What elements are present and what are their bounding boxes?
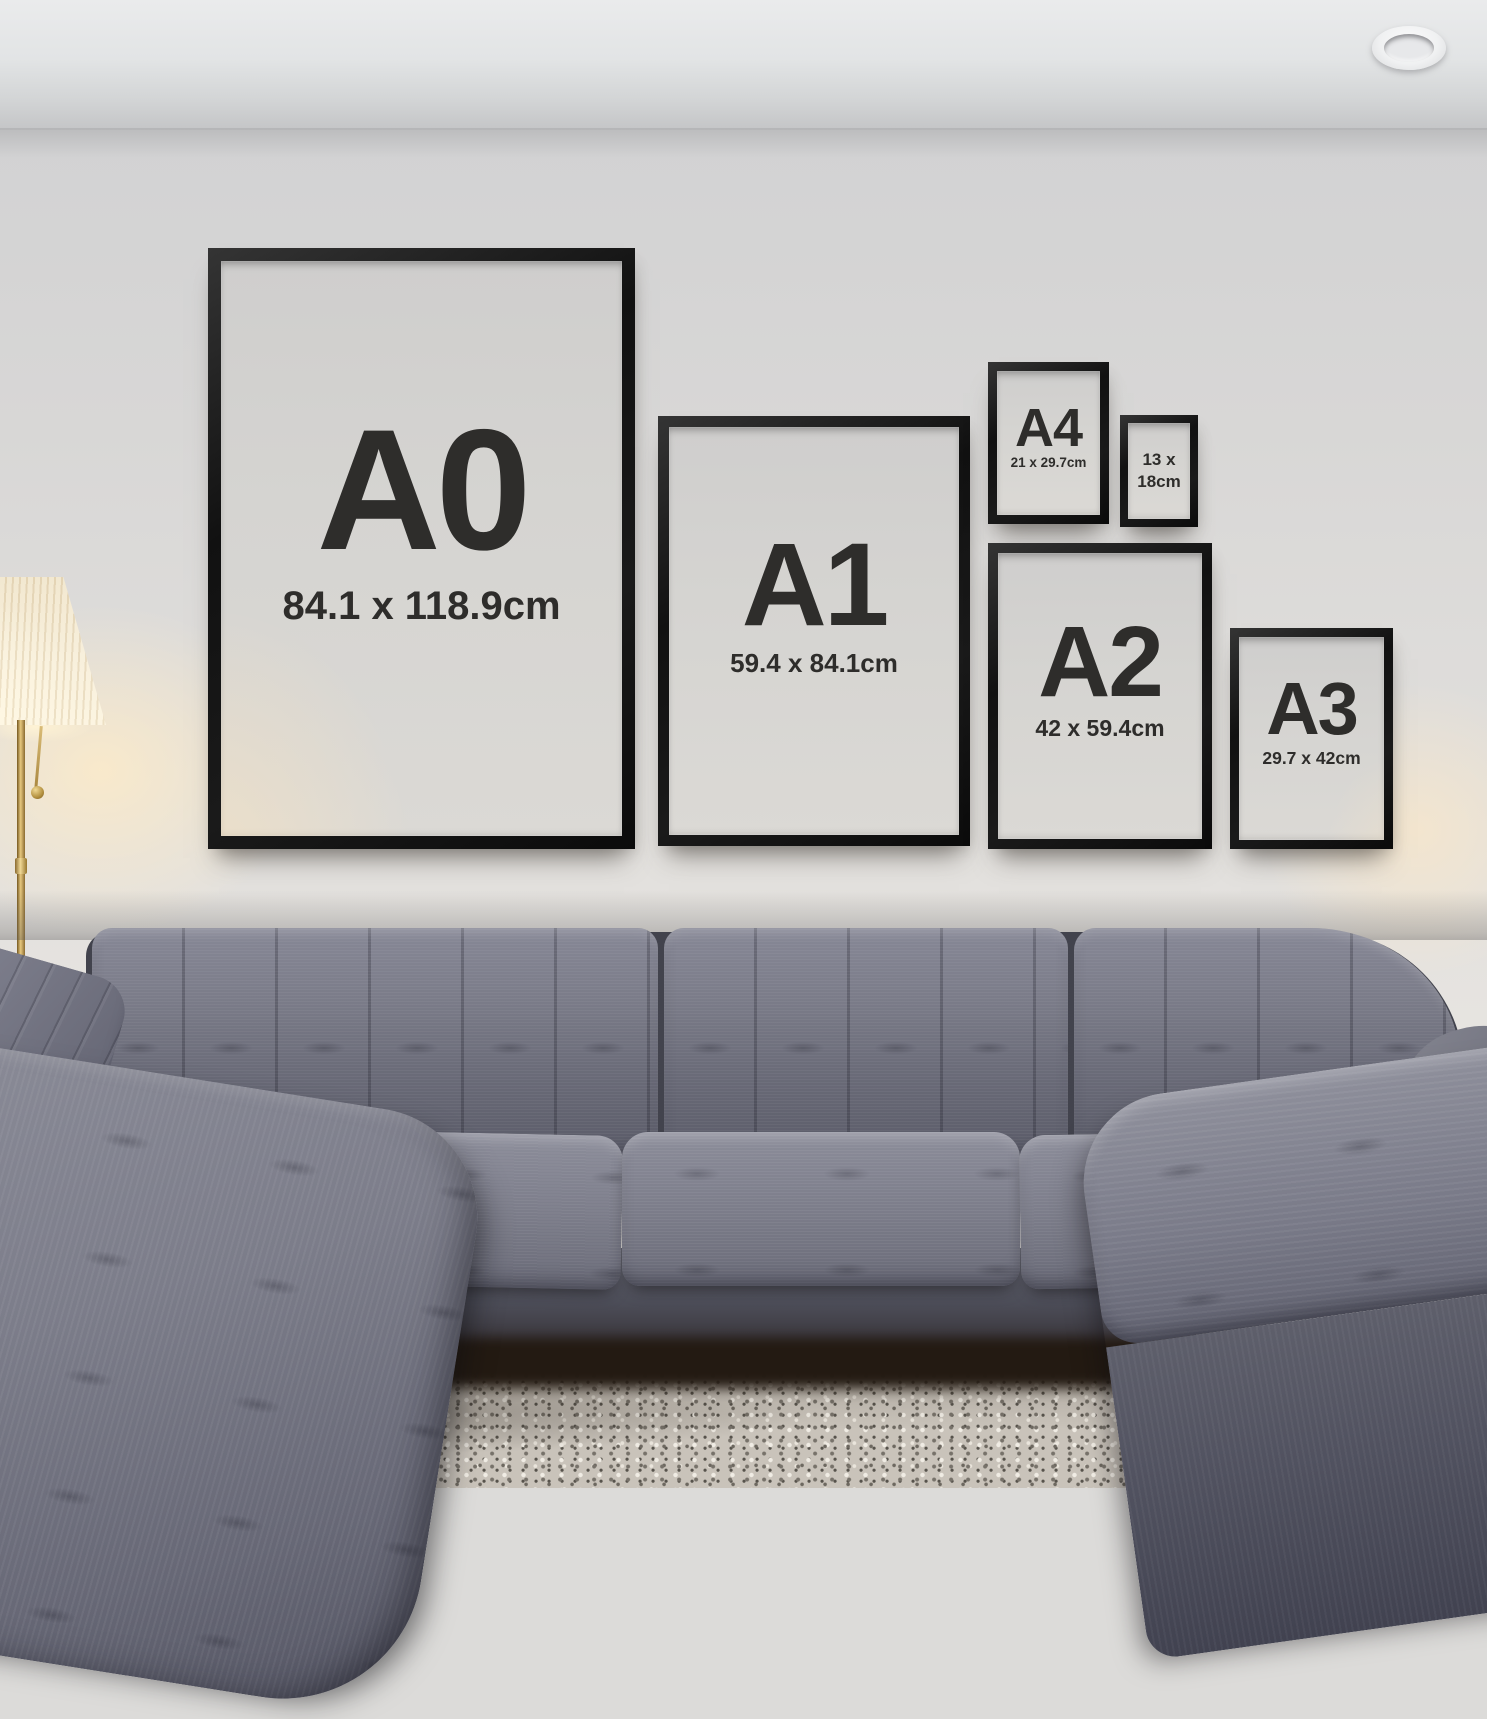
lamp-pull-chain-ball: [31, 786, 44, 799]
poster-a3: A3 29.7 x 42cm: [1239, 637, 1384, 840]
sofa-backrest-cushion-middle: [664, 928, 1068, 1164]
poster-a4-dimensions: 21 x 29.7cm: [1011, 456, 1087, 470]
poster-frame-a3: A3 29.7 x 42cm: [1230, 628, 1393, 849]
poster-a2-text: A2 42 x 59.4cm: [1035, 620, 1164, 740]
poster-a3-size-label: A3: [1266, 678, 1357, 740]
ceiling: [0, 0, 1487, 132]
recessed-ceiling-light-ring: [1384, 34, 1434, 62]
poster-frame-a0: A0 84.1 x 118.9cm: [208, 248, 635, 849]
poster-a1: A1 59.4 x 84.1cm: [669, 427, 959, 835]
poster-a3-text: A3 29.7 x 42cm: [1262, 678, 1360, 768]
lamp-pole-joint: [15, 858, 27, 874]
poster-a0-size-label: A0: [317, 418, 527, 562]
recessed-ceiling-light: [1372, 26, 1446, 70]
poster-a1-size-label: A1: [742, 536, 887, 635]
sofa-right-chaise: [1072, 1020, 1487, 1661]
poster-a4-size-label: A4: [1015, 406, 1082, 451]
poster-a4: A4 21 x 29.7cm: [997, 371, 1100, 515]
poster-a2: A2 42 x 59.4cm: [998, 553, 1202, 839]
under-sofa-shadow: [330, 1338, 1240, 1388]
poster-a3-dimensions: 29.7 x 42cm: [1262, 749, 1360, 767]
poster-a2-size-label: A2: [1038, 620, 1162, 704]
poster-a2-dimensions: 42 x 59.4cm: [1035, 716, 1164, 740]
poster-frame-13x18: 13 x 18cm: [1120, 415, 1198, 527]
ceiling-wall-shadow: [0, 128, 1487, 158]
poster-13x18-text: 13 x 18cm: [1137, 449, 1180, 493]
poster-a1-dimensions: 59.4 x 84.1cm: [730, 650, 898, 677]
poster-a0-text: A0 84.1 x 118.9cm: [282, 418, 560, 626]
poster-frame-a1: A1 59.4 x 84.1cm: [658, 416, 970, 846]
sofa-seat-cushion-2: [622, 1132, 1020, 1286]
poster-13x18: 13 x 18cm: [1128, 423, 1190, 519]
poster-frame-a4: A4 21 x 29.7cm: [988, 362, 1109, 524]
poster-frame-a2: A2 42 x 59.4cm: [988, 543, 1212, 849]
poster-a4-text: A4 21 x 29.7cm: [1011, 406, 1087, 471]
poster-13x18-dimensions-line2: 18cm: [1137, 471, 1180, 493]
poster-13x18-dimensions-line1: 13 x: [1142, 449, 1175, 471]
poster-a0-dimensions: 84.1 x 118.9cm: [282, 585, 560, 627]
sofa-left-chaise: [0, 1029, 493, 1719]
poster-a1-text: A1 59.4 x 84.1cm: [730, 536, 898, 677]
poster-a0: A0 84.1 x 118.9cm: [221, 261, 622, 836]
